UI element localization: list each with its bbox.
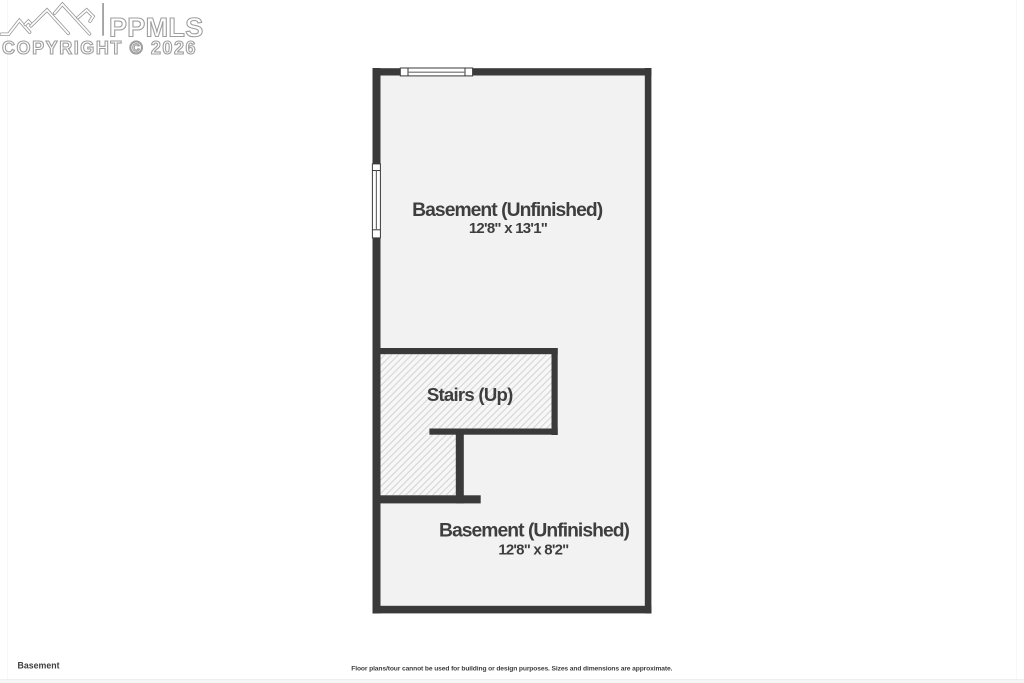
svg-text:Stairs (Up): Stairs (Up) <box>427 384 513 405</box>
svg-text:12'8" x 8'2": 12'8" x 8'2" <box>498 542 569 559</box>
svg-text:12'8" x 13'1": 12'8" x 13'1" <box>469 220 548 237</box>
svg-text:Basement: Basement <box>18 661 60 671</box>
svg-text:Basement (Unfinished): Basement (Unfinished) <box>412 200 603 221</box>
svg-text:Basement (Unfinished): Basement (Unfinished) <box>439 521 630 542</box>
svg-text:Floor plans/tour cannot be use: Floor plans/tour cannot be used for buil… <box>351 665 672 672</box>
